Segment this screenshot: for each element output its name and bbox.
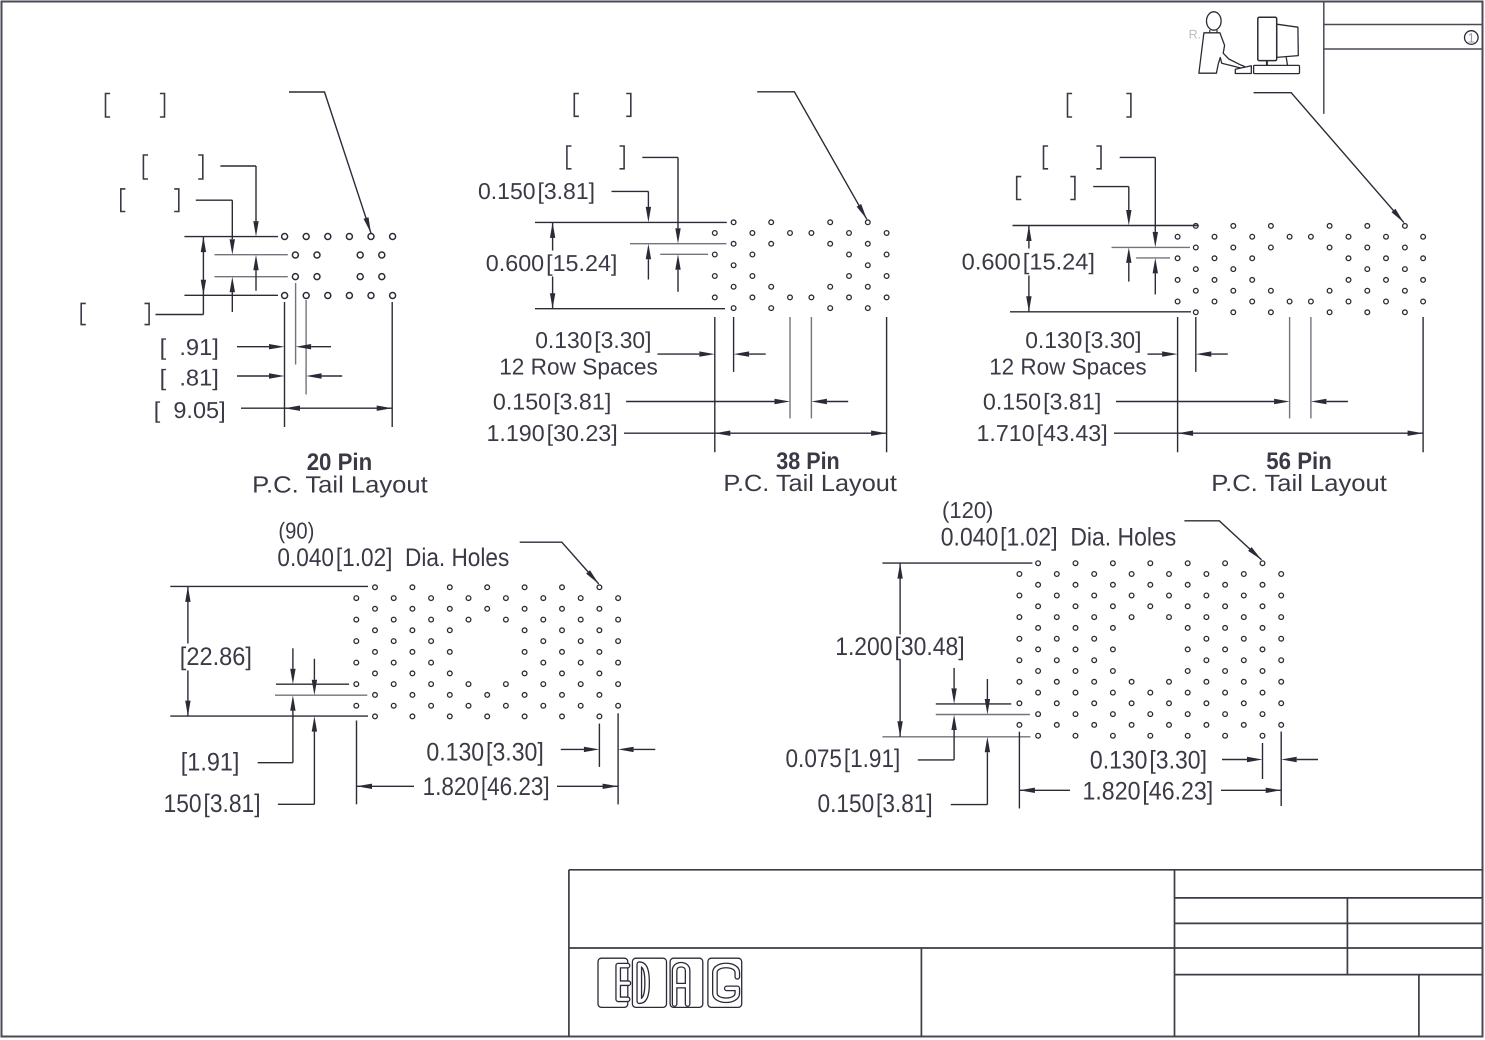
svg-text:R.: R. [1189,27,1202,41]
svg-text:1.820 [46.23]: 1.820 [46.23] [1083,777,1214,805]
svg-text:0.040 [1.02] Dia. Holes: 0.040 [1.02] Dia. Holes [277,544,509,572]
svg-text:0.600 [15.24]: 0.600 [15.24] [486,250,618,276]
svg-text:150 [3.81]: 150 [3.81] [164,790,261,818]
svg-text:0.130 [3.30]: 0.130 [3.30] [1025,327,1141,353]
svg-text:0.130 [3.30]: 0.130 [3.30] [426,738,543,766]
svg-text:[ .81]: [ .81] [160,364,219,390]
svg-text:1.710 [43.43]: 1.710 [43.43] [977,420,1108,446]
svg-text:0.600 [15.24]: 0.600 [15.24] [962,249,1095,275]
svg-text:(120): (120) [942,497,993,523]
svg-text:12 Row Spaces: 12 Row Spaces [499,354,658,380]
svg-text:1.820 [46.23]: 1.820 [46.23] [423,773,550,801]
svg-text:0.150 [3.81]: 0.150 [3.81] [478,178,595,204]
svg-text:0.150 [3.81]: 0.150 [3.81] [493,389,611,415]
svg-text:0.040 [1.02] Dia. Holes: 0.040 [1.02] Dia. Holes [941,523,1176,551]
svg-text:0.130 [3.30]: 0.130 [3.30] [1090,747,1207,775]
svg-text:P.C. Tail Layout: P.C. Tail Layout [723,470,897,496]
svg-text:1.200 [30.48]: 1.200 [30.48] [835,633,964,661]
svg-text:[ 9.05]: [ 9.05] [154,397,226,423]
svg-text:1: 1 [1468,30,1476,45]
svg-text:0.075 [1.91]: 0.075 [1.91] [786,745,901,773]
svg-text:[1.91]: [1.91] [181,749,240,777]
svg-text:P.C. Tail Layout: P.C. Tail Layout [252,472,428,498]
svg-text:0.150 [3.81]: 0.150 [3.81] [818,790,933,818]
svg-text:[22.86]: [22.86] [180,643,252,671]
svg-text:0.130 [3.30]: 0.130 [3.30] [535,327,651,353]
svg-text:[ .91]: [ .91] [160,334,219,360]
svg-text:(90): (90) [278,518,314,544]
svg-text:0.150 [3.81]: 0.150 [3.81] [983,389,1101,415]
svg-text:P.C. Tail Layout: P.C. Tail Layout [1211,470,1387,496]
svg-text:1.190 [30.23]: 1.190 [30.23] [487,420,618,446]
svg-text:12 Row Spaces: 12 Row Spaces [989,354,1146,380]
